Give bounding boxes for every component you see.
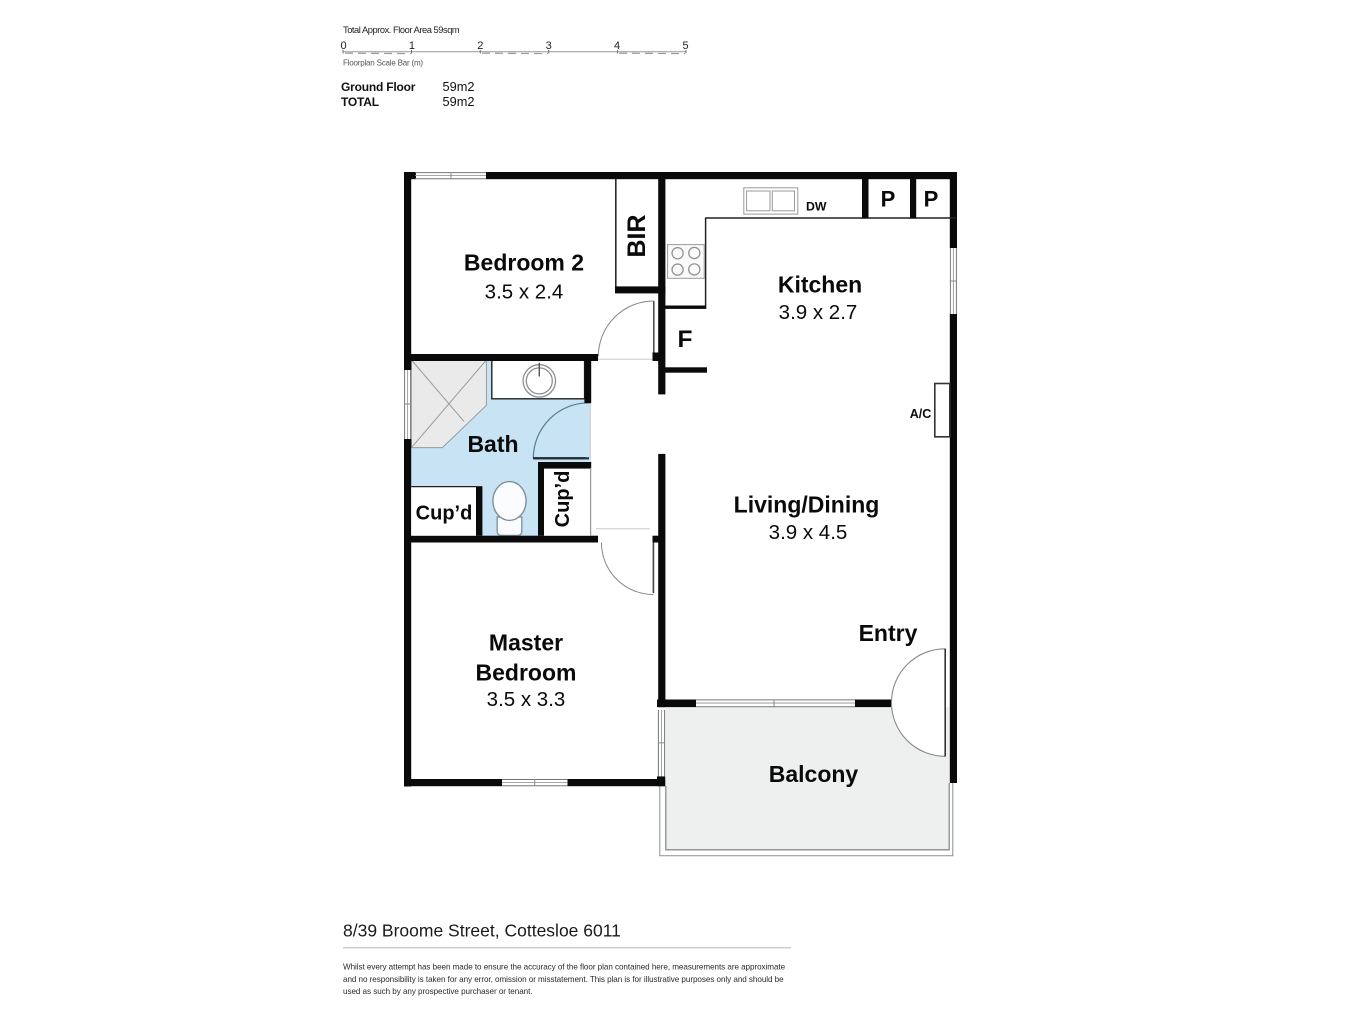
svg-text:Total Approx. Floor Area 59sqm: Total Approx. Floor Area 59sqm <box>343 25 460 35</box>
svg-text:Kitchen: Kitchen <box>778 272 862 298</box>
svg-text:and no responsibility is taken: and no responsibility is taken for any e… <box>343 975 784 984</box>
svg-text:0: 0 <box>340 40 346 52</box>
svg-text:Floorplan Scale Bar (m): Floorplan Scale Bar (m) <box>343 59 423 68</box>
svg-text:Whilst every attempt has been: Whilst every attempt has been made to en… <box>343 963 786 972</box>
svg-text:P: P <box>881 186 896 211</box>
svg-text:Cup’d: Cup’d <box>416 503 473 525</box>
svg-text:Ground Floor: Ground Floor <box>341 80 416 94</box>
svg-text:Bedroom 2: Bedroom 2 <box>464 250 584 276</box>
svg-text:Living/Dining: Living/Dining <box>734 492 880 518</box>
svg-text:3.5 x 3.3: 3.5 x 3.3 <box>487 688 566 711</box>
svg-text:Entry: Entry <box>859 620 918 646</box>
svg-text:3.5 x 2.4: 3.5 x 2.4 <box>485 281 564 304</box>
svg-text:used as such by any prospectiv: used as such by any prospective purchase… <box>343 987 533 996</box>
svg-text:5: 5 <box>682 40 688 52</box>
svg-text:59m2: 59m2 <box>443 94 475 109</box>
svg-text:Cup’d: Cup’d <box>552 471 574 528</box>
svg-text:P: P <box>924 186 939 211</box>
svg-text:Master: Master <box>489 630 563 656</box>
svg-text:59m2: 59m2 <box>443 79 475 94</box>
svg-text:8/39 Broome Street, Cottesloe: 8/39 Broome Street, Cottesloe 6011 <box>343 921 621 941</box>
svg-text:BIR: BIR <box>623 214 651 257</box>
svg-text:DW: DW <box>806 200 827 214</box>
svg-text:Bath: Bath <box>467 431 518 457</box>
svg-text:3.9 x 2.7: 3.9 x 2.7 <box>779 301 858 324</box>
svg-text:Balcony: Balcony <box>769 761 859 787</box>
svg-text:A/C: A/C <box>910 407 932 421</box>
svg-text:Bedroom: Bedroom <box>476 659 577 685</box>
svg-text:3.9 x 4.5: 3.9 x 4.5 <box>769 521 848 544</box>
svg-text:TOTAL: TOTAL <box>341 95 379 109</box>
svg-text:F: F <box>678 326 693 353</box>
